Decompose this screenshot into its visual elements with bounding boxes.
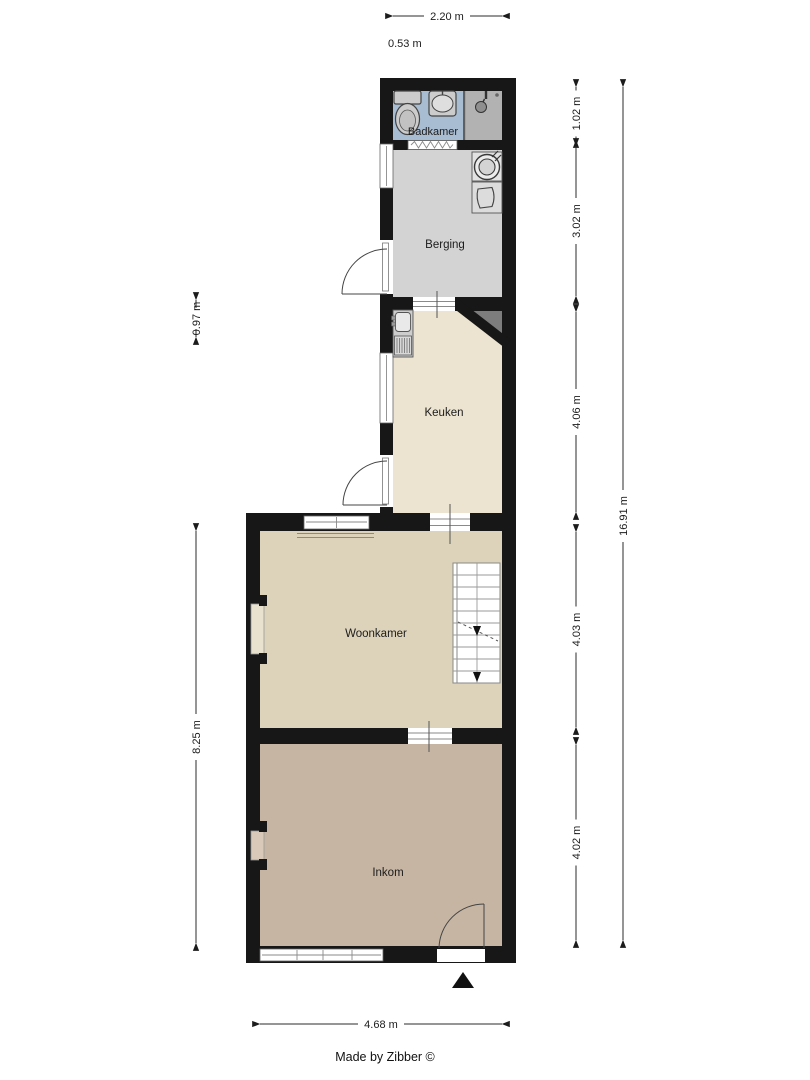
dim-bottom-width-label: 4.68 m xyxy=(364,1019,398,1031)
room-label-badkamer: Badkamer xyxy=(408,126,458,138)
kitchen-counter-icon xyxy=(392,310,414,357)
floorplan-drawing: Badkamer Berging Keuken Woonkamer Inkom … xyxy=(0,0,810,1080)
room-label-woonkamer: Woonkamer xyxy=(345,628,407,640)
window-inkom-bottom xyxy=(260,949,383,961)
dim-left-lower-label: 8.25 m xyxy=(191,720,203,754)
washing-machine-icon xyxy=(472,151,502,181)
dim-right-total: 16.91 m xyxy=(616,87,630,940)
wall-top-lower xyxy=(246,513,516,531)
dim-right-5: 4.02 m xyxy=(569,745,583,940)
dim-left-upper: 0.97 m xyxy=(191,300,203,337)
door-keuken xyxy=(343,455,393,507)
dim-right-4: 4.03 m xyxy=(569,532,583,727)
window-keuken-left xyxy=(380,353,393,423)
folding-door-badkamer xyxy=(408,141,457,150)
dim-left-lower: 8.25 m xyxy=(189,531,203,943)
shower-divider xyxy=(463,91,465,140)
dim-right-1: 1.02 m xyxy=(569,87,583,140)
dim-right-total-label: 16.91 m xyxy=(618,496,630,536)
dim-right-4-label: 4.03 m xyxy=(571,613,583,647)
dim-left-upper-label: 0.97 m xyxy=(191,302,203,336)
wall-woonkamer-inkom xyxy=(246,728,516,744)
dim-right-5-label: 4.02 m xyxy=(571,826,583,860)
dim-right-3-label: 4.06 m xyxy=(571,395,583,429)
bathroom-sink-icon xyxy=(429,91,456,116)
door-berging xyxy=(342,240,393,294)
room-label-keuken: Keuken xyxy=(424,407,463,419)
footer-credit: Made by Zibber © xyxy=(335,1050,435,1064)
floor-shower xyxy=(465,91,502,140)
room-label-inkom: Inkom xyxy=(372,867,403,879)
dim-right-3: 4.06 m xyxy=(569,312,583,512)
floor-inkom xyxy=(260,744,502,946)
dim-right-2-label: 3.02 m xyxy=(571,204,583,238)
dim-top-width-label: 2.20 m xyxy=(430,11,464,23)
floorplan-page: Badkamer Berging Keuken Woonkamer Inkom … xyxy=(0,0,810,1080)
stairs xyxy=(453,563,500,683)
dim-top-offset-label: 0.53 m xyxy=(388,38,422,50)
dim-top-width: 2.20 m xyxy=(393,9,502,23)
dim-bottom-width: 4.68 m xyxy=(260,1017,502,1031)
dim-right-1-label: 1.02 m xyxy=(571,97,583,131)
wall-top-upper xyxy=(380,78,516,91)
boiler-icon xyxy=(472,182,502,213)
window-berging-left xyxy=(380,144,393,188)
room-label-berging: Berging xyxy=(425,239,465,251)
entrance-arrow-icon xyxy=(452,972,474,988)
dim-right-2: 3.02 m xyxy=(569,146,583,296)
